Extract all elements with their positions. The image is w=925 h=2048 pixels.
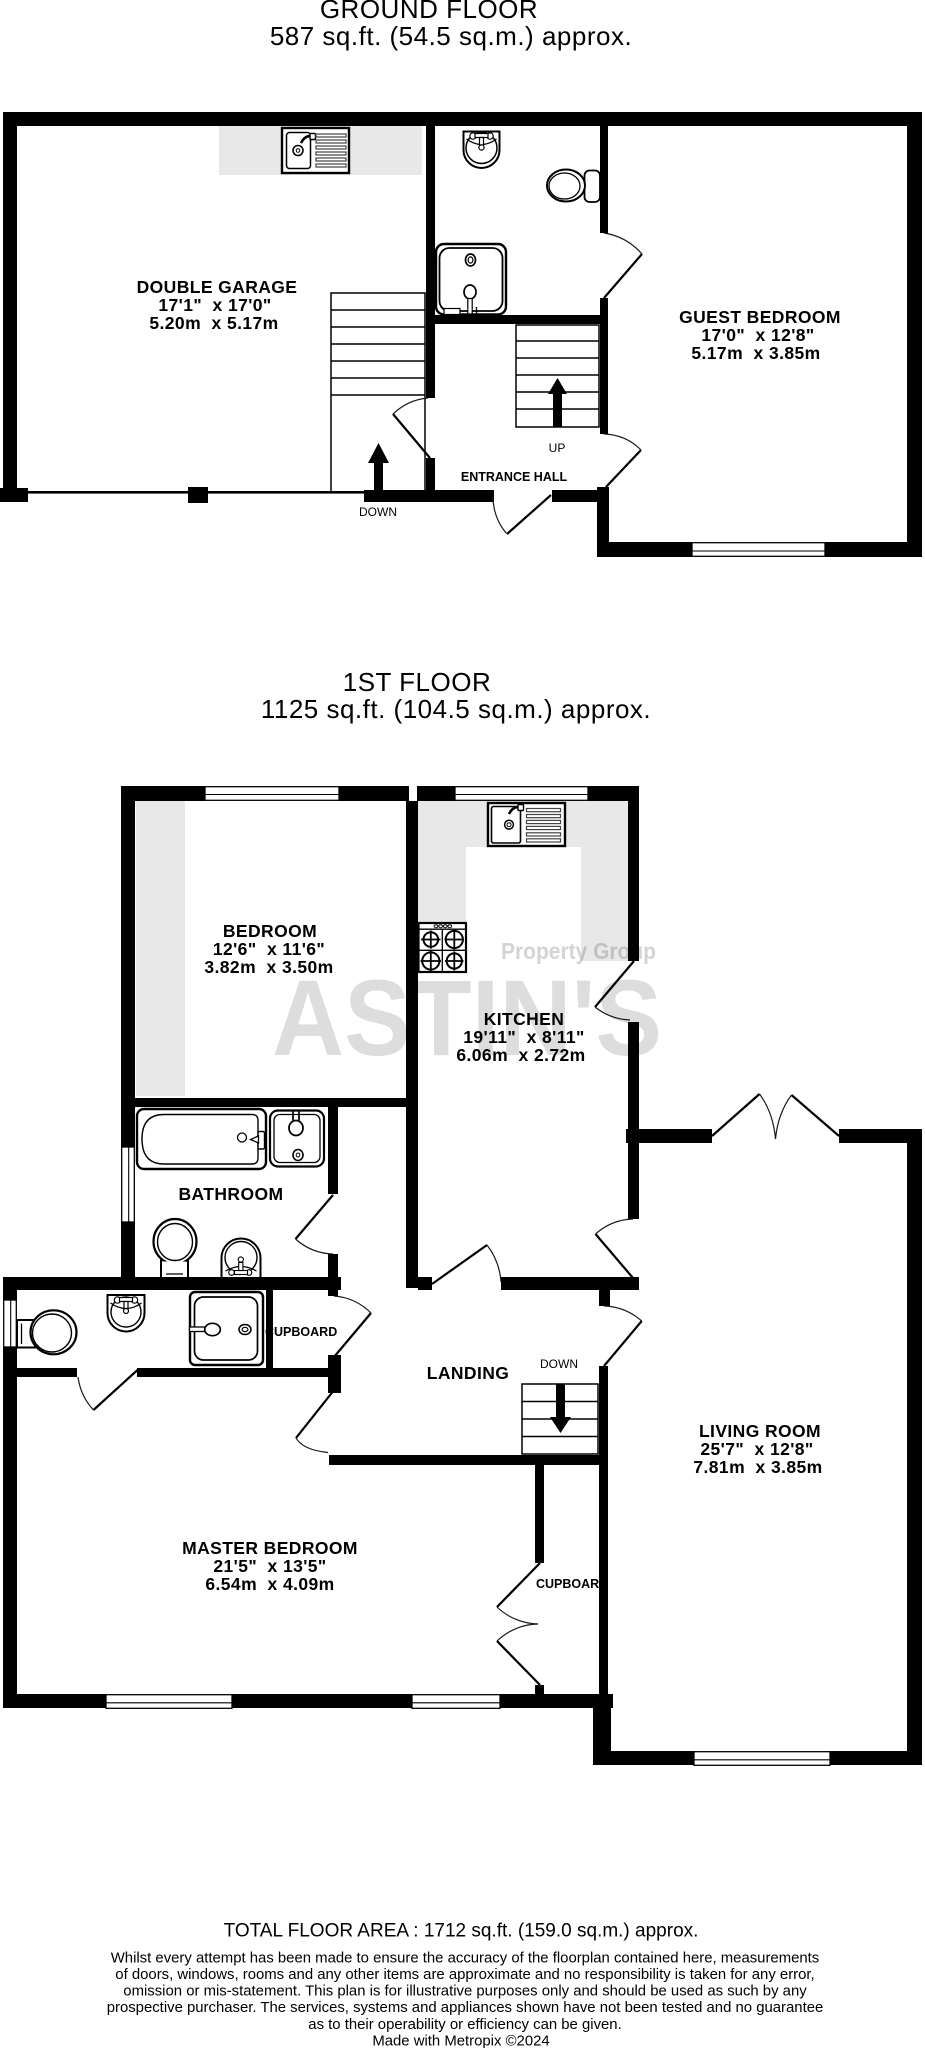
svg-text:5.20m x 5.17m: 5.20m x 5.17m: [149, 313, 278, 333]
svg-text:CUPBOARD: CUPBOARD: [536, 1577, 608, 1591]
svg-text:12'6" x 11'6": 12'6" x 11'6": [213, 939, 325, 959]
svg-text:ENTRANCE HALL: ENTRANCE HALL: [461, 470, 568, 484]
svg-text:GUEST BEDROOM: GUEST BEDROOM: [679, 307, 841, 327]
svg-text:KITCHEN: KITCHEN: [484, 1009, 565, 1029]
svg-text:DOWN: DOWN: [540, 1357, 578, 1371]
svg-text:DOUBLE GARAGE: DOUBLE GARAGE: [137, 277, 298, 297]
svg-text:21'5" x 13'5": 21'5" x 13'5": [213, 1556, 326, 1576]
svg-text:BATHROOM: BATHROOM: [179, 1184, 284, 1204]
svg-text:19'11" x 8'11": 19'11" x 8'11": [463, 1027, 584, 1047]
svg-text:3.82m x 3.50m: 3.82m x 3.50m: [204, 957, 333, 977]
svg-text:5.17m x 3.85m: 5.17m x 3.85m: [691, 343, 820, 363]
svg-text:LIVING ROOM: LIVING ROOM: [699, 1421, 821, 1441]
svg-text:as to their operability or eff: as to their operability or efficiency ca…: [308, 2017, 621, 2033]
svg-text:TOTAL FLOOR AREA : 1712 sq.ft.: TOTAL FLOOR AREA : 1712 sq.ft. (159.0 sq…: [224, 1921, 699, 1942]
svg-text:587 sq.ft. (54.5 sq.m.) approx: 587 sq.ft. (54.5 sq.m.) approx.: [270, 21, 632, 51]
svg-text:6.54m x 4.09m: 6.54m x 4.09m: [205, 1574, 334, 1594]
svg-text:LANDING: LANDING: [427, 1363, 510, 1383]
svg-text:6.06m x 2.72m: 6.06m x 2.72m: [456, 1045, 585, 1065]
svg-text:MASTER BEDROOM: MASTER BEDROOM: [182, 1538, 358, 1558]
svg-text:BEDROOM: BEDROOM: [223, 921, 317, 941]
svg-text:1125 sq.ft. (104.5 sq.m.) appr: 1125 sq.ft. (104.5 sq.m.) approx.: [261, 694, 651, 724]
svg-text:omission or mis-statement. Thi: omission or mis-statement. This plan is …: [123, 1984, 807, 2000]
svg-text:Made with Metropix ©2024: Made with Metropix ©2024: [372, 2033, 549, 2048]
svg-text:17'0" x 12'8": 17'0" x 12'8": [701, 325, 814, 345]
svg-text:DOWN: DOWN: [359, 505, 397, 519]
svg-text:1ST FLOOR: 1ST FLOOR: [343, 667, 492, 697]
svg-text:of doors, windows, rooms and a: of doors, windows, rooms and any other i…: [115, 1967, 814, 1983]
svg-text:UP: UP: [549, 441, 566, 455]
svg-text:25'7" x 12'8": 25'7" x 12'8": [700, 1439, 813, 1459]
svg-text:17'1" x 17'0": 17'1" x 17'0": [158, 295, 271, 315]
svg-text:Whilst every attempt has been: Whilst every attempt has been made to en…: [111, 1951, 820, 1967]
svg-text:prospective purchaser. The ser: prospective purchaser. The services, sys…: [107, 2000, 824, 2016]
svg-text:7.81m x 3.85m: 7.81m x 3.85m: [693, 1457, 822, 1477]
svg-text:CUPBOARD: CUPBOARD: [265, 1325, 337, 1339]
